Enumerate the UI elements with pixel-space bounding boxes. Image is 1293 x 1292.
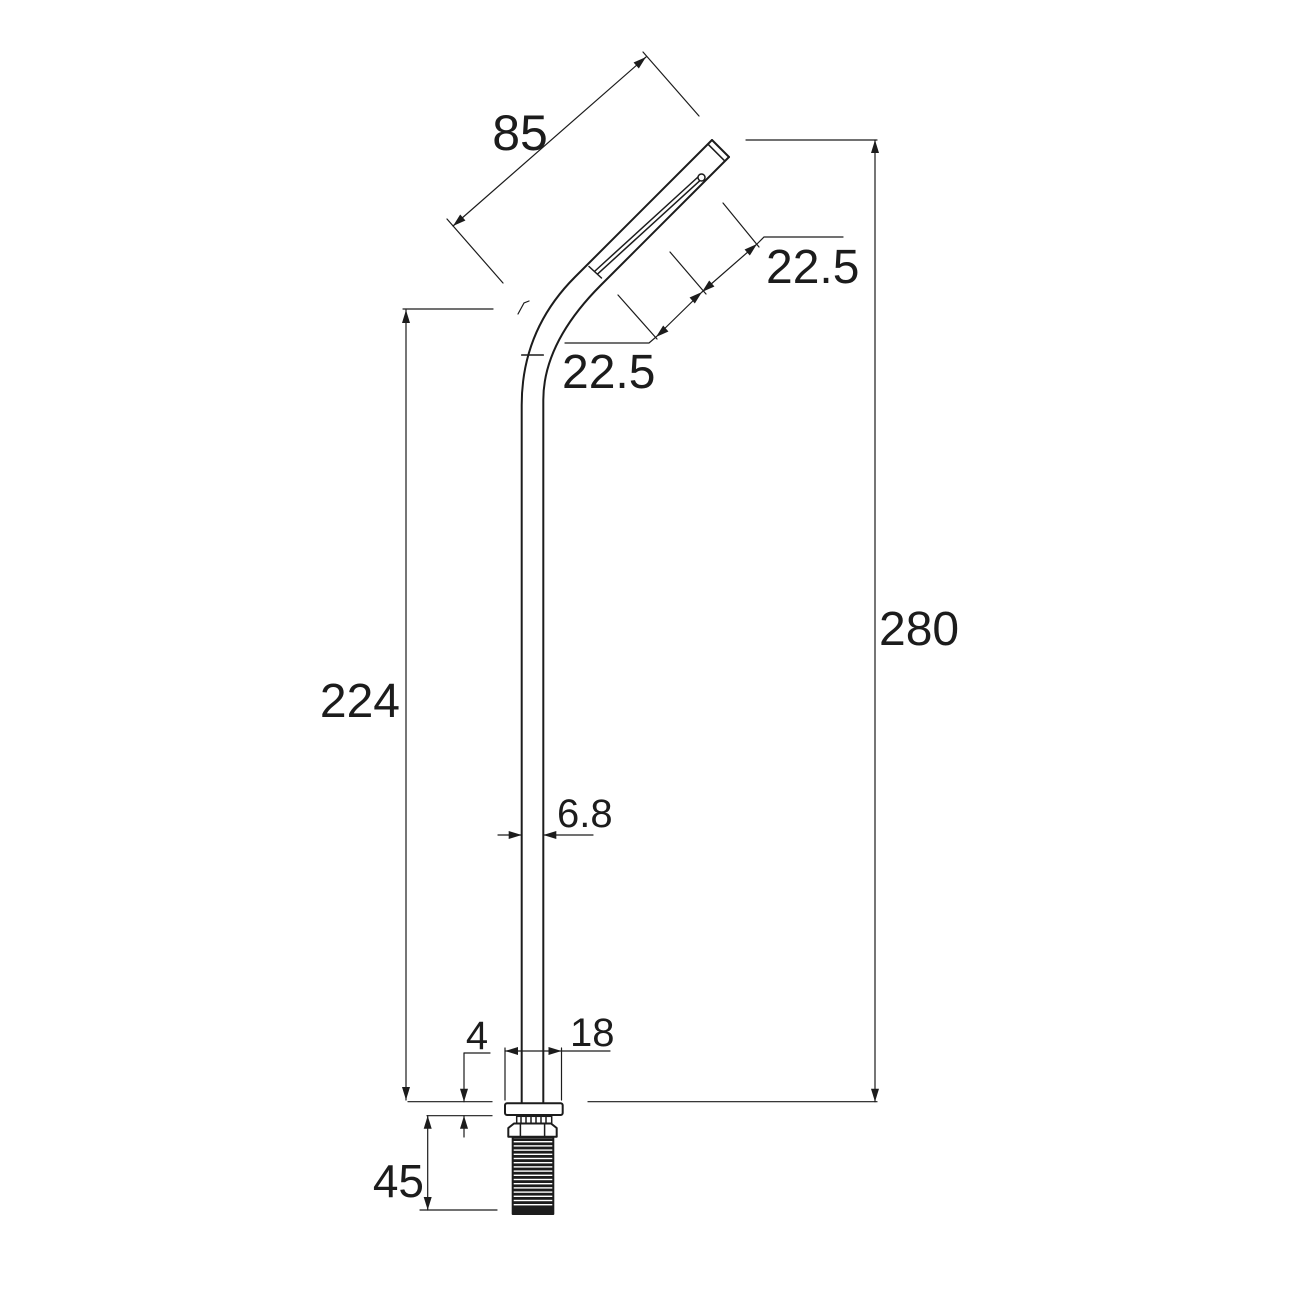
dim-label-22-5-lower: 22.5 (562, 346, 655, 399)
tangent-point-tick (518, 301, 529, 314)
slot-end-notch (698, 174, 705, 181)
lock-washer (517, 1116, 552, 1123)
dimension-body-height: 224 (320, 301, 529, 1100)
arrowhead (549, 1047, 562, 1055)
spout-outlet-slot (589, 174, 705, 278)
technical-drawing-page: 85 22.5 22.5 224 280 (0, 0, 1293, 1292)
dim-label-18: 18 (570, 1011, 615, 1055)
dimension-spout-length: 85 (447, 52, 699, 283)
hex-nut (508, 1124, 556, 1137)
arrowhead (424, 1116, 432, 1129)
dim-label-4: 4 (466, 1014, 488, 1058)
extension-line (723, 203, 759, 247)
deck-flange (505, 1103, 563, 1115)
dimension-head-offset-lower: 22.5 (562, 252, 706, 399)
dim-label-85: 85 (492, 105, 548, 161)
leader-line (565, 337, 656, 343)
arrowhead (402, 310, 410, 323)
arrowhead (402, 1087, 410, 1100)
arrowhead (871, 140, 879, 153)
arrowhead (509, 831, 522, 839)
technical-drawing: 85 22.5 22.5 224 280 (0, 0, 1293, 1292)
threaded-tail (513, 1137, 554, 1214)
arrowhead (505, 1047, 518, 1055)
arrowhead (460, 1089, 468, 1102)
extension-line (643, 52, 699, 116)
dimension-flange-thickness: 4 (408, 1014, 492, 1137)
arrowhead (424, 1197, 432, 1210)
spout-tip-face-outer (712, 140, 729, 157)
spout-and-pole-left-edge (522, 140, 712, 1103)
dimension-pole-width: 6.8 (498, 792, 613, 839)
dim-label-280: 280 (879, 603, 959, 656)
dim-label-224: 224 (320, 675, 400, 728)
thread-end-band (513, 1208, 554, 1215)
extension-line (447, 219, 503, 283)
dimension-head-offset-upper: 22.5 (699, 203, 859, 295)
dim-label-6-8: 6.8 (557, 792, 613, 836)
thread-stripes (513, 1137, 554, 1214)
spout-and-pole-right-edge (543, 157, 729, 1103)
arrowhead (871, 1089, 879, 1102)
arrowhead (543, 831, 556, 839)
dimension-thread-length: 45 (373, 1116, 497, 1210)
dimension-line (453, 57, 646, 226)
dim-label-45: 45 (373, 1155, 424, 1207)
dim-label-22-5-upper: 22.5 (766, 241, 859, 294)
extension-line (670, 252, 706, 294)
spout-tip-face-inner (708, 144, 725, 161)
arrowhead (460, 1116, 468, 1129)
extension-line (618, 295, 657, 339)
